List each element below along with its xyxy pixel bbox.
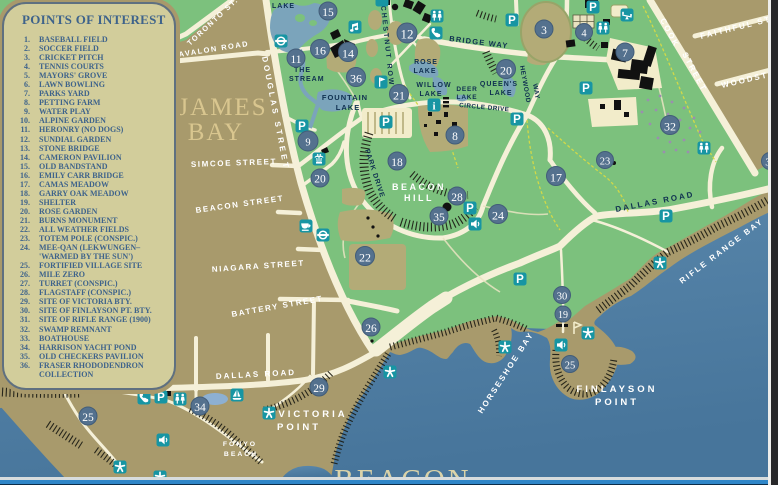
svg-text:19: 19 xyxy=(558,310,568,321)
svg-text:BEACON: BEACON xyxy=(392,182,446,192)
svg-text:JAMES: JAMES xyxy=(178,94,267,121)
svg-text:HILL: HILL xyxy=(404,193,434,203)
svg-text:3: 3 xyxy=(541,25,547,37)
svg-text:LAKE: LAKE xyxy=(336,103,360,112)
svg-text:22: 22 xyxy=(359,251,371,265)
svg-text:16: 16 xyxy=(314,44,326,58)
svg-text:LAKE: LAKE xyxy=(413,68,436,75)
svg-text:ROSE: ROSE xyxy=(414,59,438,66)
svg-text:15: 15 xyxy=(322,7,334,19)
svg-text:8: 8 xyxy=(452,131,458,143)
svg-text:DEER: DEER xyxy=(456,86,477,93)
svg-text:LAKE: LAKE xyxy=(489,90,512,97)
svg-text:4: 4 xyxy=(581,29,587,40)
svg-text:FOUNTAIN: FOUNTAIN xyxy=(322,93,368,102)
svg-text:12: 12 xyxy=(401,27,414,42)
svg-text:21: 21 xyxy=(393,89,405,103)
svg-text:7: 7 xyxy=(622,48,628,60)
svg-text:28: 28 xyxy=(451,192,463,204)
svg-text:QUEEN'S: QUEEN'S xyxy=(480,81,518,88)
svg-text:18: 18 xyxy=(391,157,403,169)
svg-text:THE: THE xyxy=(294,67,311,74)
svg-text:30: 30 xyxy=(557,292,568,303)
svg-text:POINT: POINT xyxy=(277,422,321,433)
svg-text:11: 11 xyxy=(290,54,301,66)
svg-text:32: 32 xyxy=(664,120,676,134)
svg-text:LAKE: LAKE xyxy=(419,91,442,98)
svg-text:29: 29 xyxy=(313,383,325,395)
svg-text:17: 17 xyxy=(550,171,562,185)
svg-text:14: 14 xyxy=(342,47,354,61)
svg-text:26: 26 xyxy=(365,323,377,335)
svg-text:9: 9 xyxy=(305,138,310,149)
svg-text:20: 20 xyxy=(500,64,512,78)
svg-text:STREAM: STREAM xyxy=(289,76,325,83)
svg-text:BAY: BAY xyxy=(188,119,245,146)
svg-text:FINLAYSON: FINLAYSON xyxy=(576,384,657,395)
svg-text:36: 36 xyxy=(350,72,362,86)
svg-text:BEACH: BEACH xyxy=(224,451,258,458)
svg-text:34: 34 xyxy=(194,402,206,414)
svg-text:FONYO: FONYO xyxy=(223,441,257,448)
svg-text:LAKE: LAKE xyxy=(272,3,295,10)
svg-text:25: 25 xyxy=(565,361,576,372)
svg-text:25: 25 xyxy=(82,412,94,424)
svg-text:LAKE: LAKE xyxy=(457,94,478,101)
svg-text:POINT: POINT xyxy=(595,397,639,408)
svg-text:35: 35 xyxy=(433,212,445,224)
svg-text:20: 20 xyxy=(314,174,326,186)
svg-text:24: 24 xyxy=(492,209,504,223)
svg-text:WILLOW: WILLOW xyxy=(416,82,451,89)
svg-text:23: 23 xyxy=(600,157,611,168)
svg-text:VICTORIA: VICTORIA xyxy=(278,409,347,420)
